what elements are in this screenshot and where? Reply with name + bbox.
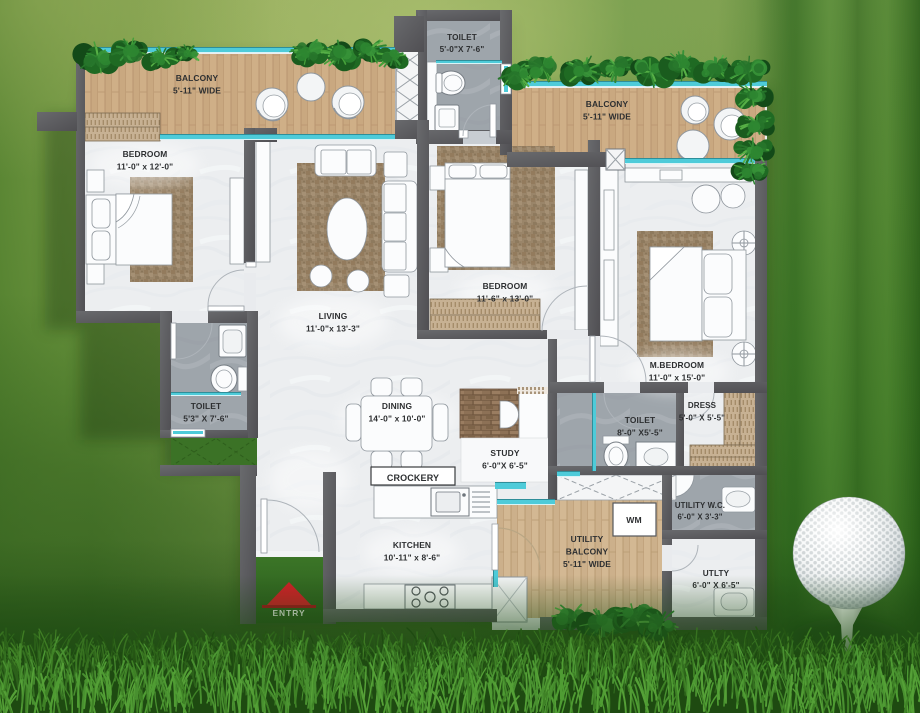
svg-text:CROCKERY: CROCKERY (387, 473, 439, 483)
svg-text:WM: WM (626, 515, 642, 525)
